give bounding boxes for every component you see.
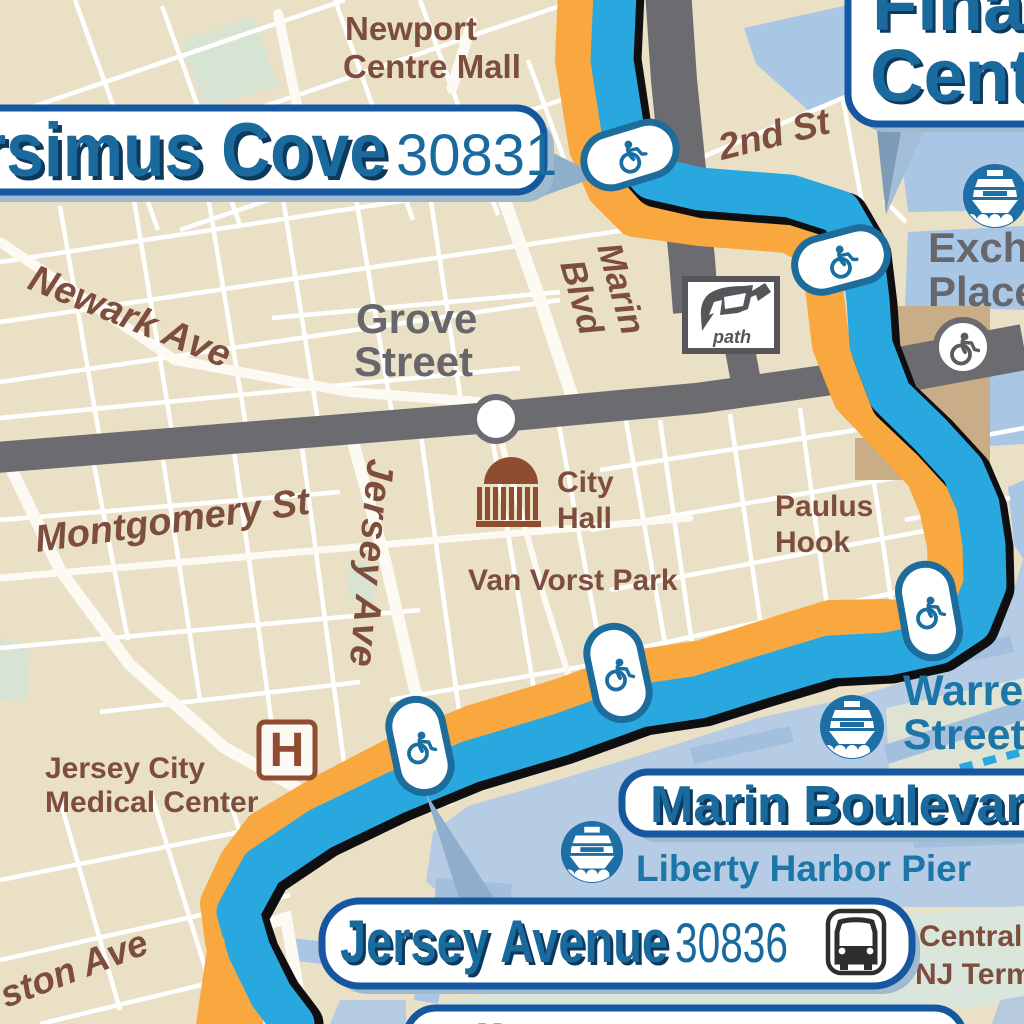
svg-text:Street P: Street P — [903, 711, 1024, 759]
svg-text:30836: 30836 — [675, 911, 788, 974]
svg-text:Liberty State: Liberty State — [440, 1013, 779, 1024]
svg-text:Van Vorst Park: Van Vorst Park — [468, 564, 678, 597]
svg-text:Marin Boulevard: Marin Boulevard — [650, 776, 1024, 834]
svg-text:Centre Mall: Centre Mall — [343, 48, 521, 85]
svg-text:Hook: Hook — [775, 526, 850, 559]
svg-text:H: H — [270, 724, 305, 777]
svg-text:Central: Central — [919, 920, 1022, 953]
svg-text:Medical Center: Medical Center — [45, 786, 259, 819]
svg-text:Jersey City: Jersey City — [45, 752, 205, 785]
svg-text:Jersey Avenue: Jersey Avenue — [340, 908, 668, 975]
svg-text:30831: 30831 — [396, 123, 557, 188]
svg-text:arsimus Cove: arsimus Cove — [0, 108, 387, 193]
svg-text:Liberty Harbor Pier: Liberty Harbor Pier — [636, 848, 971, 889]
svg-text:Warren: Warren — [903, 667, 1024, 715]
svg-text:City: City — [557, 466, 614, 499]
svg-text:Excha: Excha — [928, 224, 1024, 271]
svg-text:Newport: Newport — [345, 10, 477, 47]
svg-text:NJ Termi: NJ Termi — [915, 958, 1024, 991]
svg-text:Paulus: Paulus — [775, 490, 873, 523]
svg-text:Cente: Cente — [870, 34, 1024, 117]
svg-text:Grove: Grove — [356, 295, 477, 342]
svg-text:path: path — [712, 327, 751, 347]
svg-text:Hall: Hall — [557, 502, 612, 535]
svg-text:Street: Street — [354, 338, 473, 385]
svg-text:Place: Place — [928, 268, 1024, 315]
